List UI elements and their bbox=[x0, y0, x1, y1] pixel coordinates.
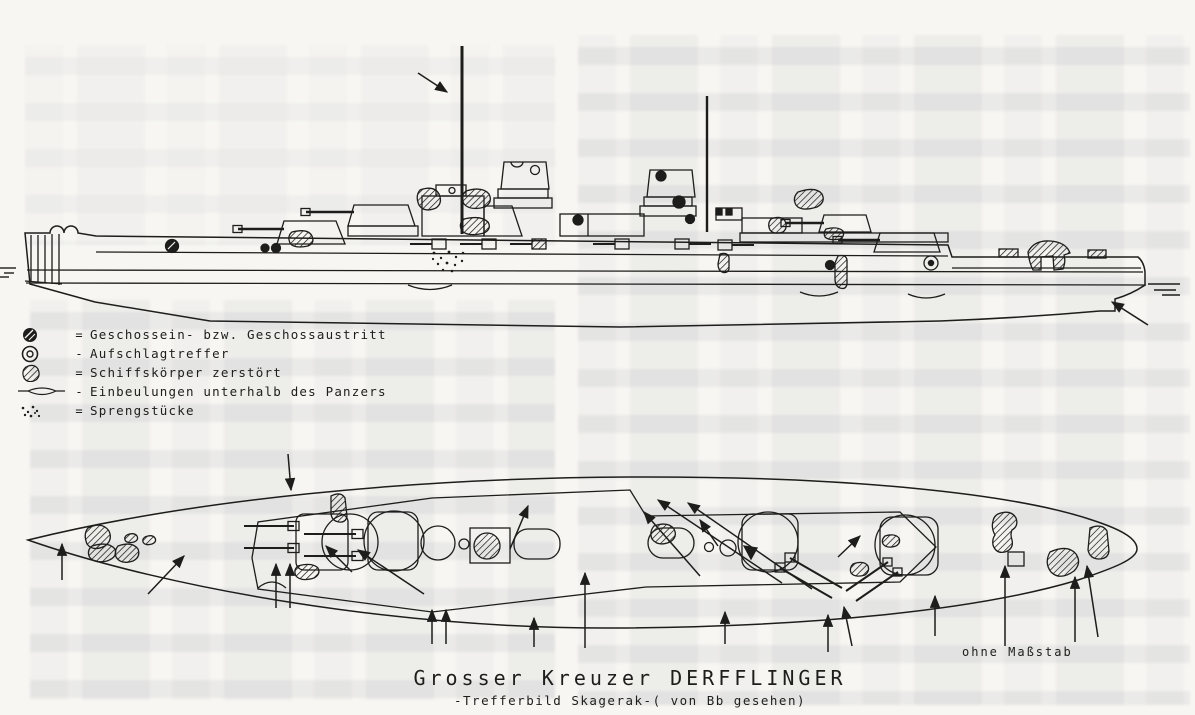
hull-destroyed-symbol bbox=[18, 363, 58, 382]
legend-separator: = bbox=[68, 328, 90, 342]
impact-hit bbox=[924, 256, 938, 270]
hit-arrows-profile bbox=[418, 73, 1148, 325]
scale-note: ohne Maßstab bbox=[962, 645, 1073, 659]
profile-damage-marks bbox=[166, 171, 1107, 298]
scanned-book-page: = Geschossein- bzw. Geschossaustritt - A… bbox=[0, 0, 1195, 715]
legend-separator: = bbox=[68, 404, 90, 418]
legend-separator: - bbox=[68, 385, 90, 399]
legend-item: = Schiffskörper zerstört bbox=[18, 363, 387, 382]
diagram-subtitle: -Trefferbild Skagerak-( von Bb gesehen) bbox=[330, 693, 930, 708]
legend-separator: = bbox=[68, 366, 90, 380]
legend-item: = Sprengstücke bbox=[18, 401, 387, 420]
legend-label: Aufschlagtreffer bbox=[90, 346, 230, 361]
side-profile-view bbox=[0, 46, 1180, 327]
shell-fragments-symbol bbox=[18, 402, 58, 420]
diagram-title: Grosser Kreuzer DERFFLINGER bbox=[330, 666, 930, 690]
impact-hit-symbol bbox=[18, 345, 58, 363]
legend: = Geschossein- bzw. Geschossaustritt - A… bbox=[18, 325, 387, 420]
bow-ribs bbox=[25, 234, 62, 285]
legend-label: Sprengstücke bbox=[90, 403, 195, 418]
legend-label: Einbeulungen unterhalb des Panzers bbox=[90, 384, 387, 399]
dent-below-armor-symbol bbox=[18, 383, 66, 401]
legend-separator: - bbox=[68, 347, 90, 361]
deck-plan-view bbox=[28, 454, 1137, 652]
hit-arrows-plan bbox=[62, 454, 1098, 652]
legend-label: Schiffskörper zerstört bbox=[90, 365, 282, 380]
legend-item: - Aufschlagtreffer bbox=[18, 344, 387, 363]
legend-label: Geschossein- bzw. Geschossaustritt bbox=[90, 327, 387, 342]
legend-item: = Geschossein- bzw. Geschossaustritt bbox=[18, 325, 387, 344]
aft-funnel bbox=[640, 170, 696, 216]
caption-block: Grosser Kreuzer DERFFLINGER -Trefferbild… bbox=[330, 666, 930, 708]
conning-tower-and-funnels-plan bbox=[421, 526, 736, 563]
midship-deckhouses bbox=[560, 208, 948, 242]
legend-item: - Einbeulungen unterhalb des Panzers bbox=[18, 382, 387, 401]
plan-damage-marks bbox=[85, 494, 1109, 588]
shell-hole bbox=[166, 240, 179, 253]
shell-entry-exit-symbol bbox=[18, 326, 58, 344]
forward-funnel bbox=[494, 162, 552, 208]
